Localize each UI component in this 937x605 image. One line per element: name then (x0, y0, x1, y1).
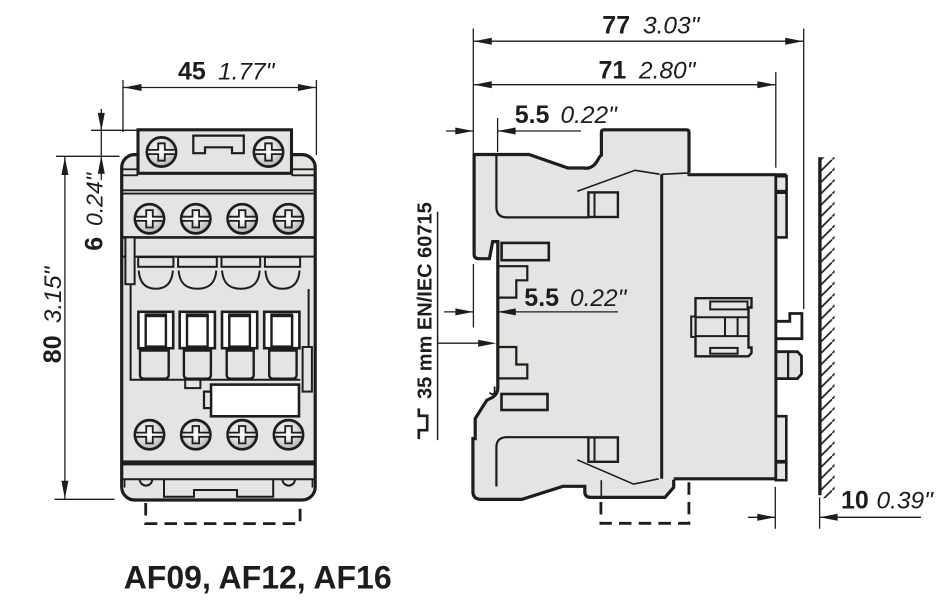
svg-text:0.22": 0.22" (561, 102, 619, 129)
svg-text:77: 77 (602, 12, 630, 40)
svg-text:5.5: 5.5 (515, 101, 550, 129)
svg-text:5.5: 5.5 (524, 284, 559, 312)
svg-text:35 mm EN/IEC 60715: 35 mm EN/IEC 60715 (415, 202, 437, 399)
svg-text:10: 10 (841, 487, 869, 515)
svg-text:6: 6 (81, 237, 109, 251)
svg-text:0.24": 0.24" (82, 171, 108, 226)
svg-text:AF09, AF12, AF16: AF09, AF12, AF16 (124, 560, 392, 596)
svg-text:3.15": 3.15" (40, 266, 67, 324)
svg-text:2.80": 2.80" (638, 57, 697, 84)
svg-text:1.77": 1.77" (218, 58, 276, 85)
svg-text:71: 71 (599, 56, 627, 84)
svg-text:0.22": 0.22" (570, 285, 628, 312)
svg-text:45: 45 (178, 57, 206, 85)
svg-text:0.39": 0.39" (877, 488, 935, 515)
svg-text:3.03": 3.03" (643, 13, 701, 40)
svg-text:80: 80 (39, 335, 67, 363)
